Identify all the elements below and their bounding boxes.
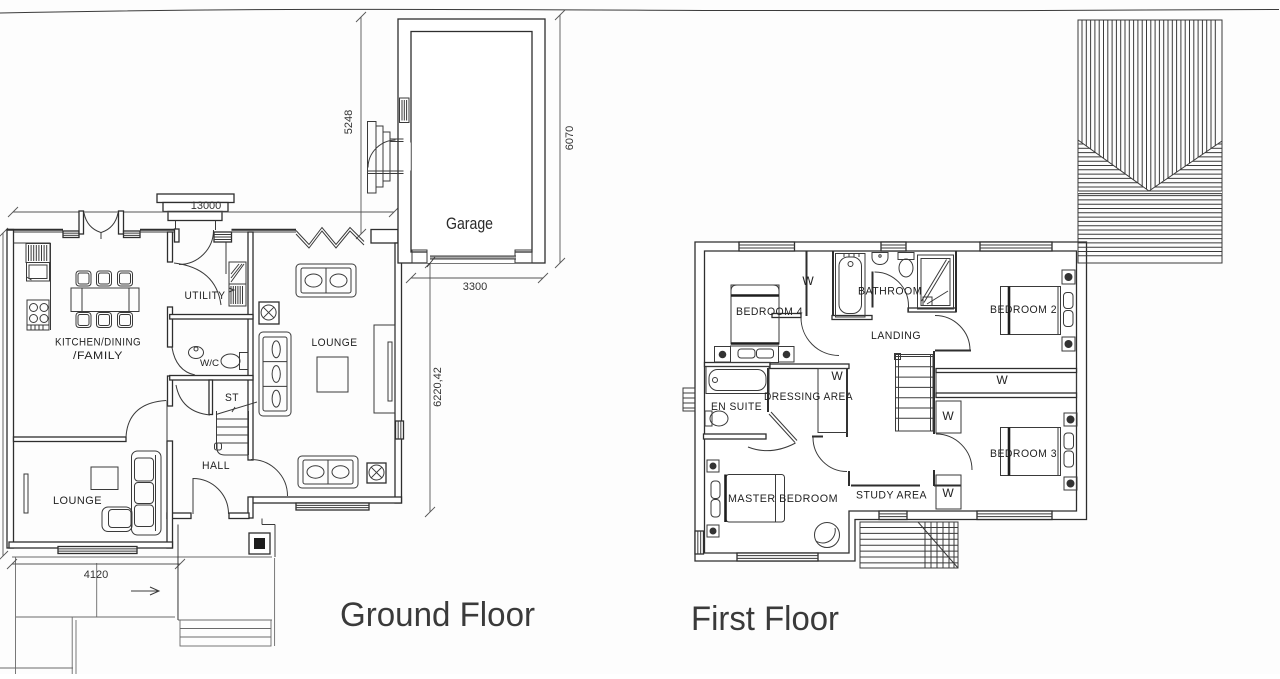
svg-text:Ground Floor: Ground Floor [340,596,535,634]
svg-text:W: W [996,373,1008,387]
svg-text:EN SUITE: EN SUITE [711,401,762,413]
svg-text:W: W [802,274,814,288]
svg-text:MASTER BEDROOM: MASTER BEDROOM [728,493,838,505]
svg-text:STUDY AREA: STUDY AREA [856,490,927,502]
svg-text:13000: 13000 [191,200,222,212]
svg-text:6110: 6110 [0,360,3,384]
svg-text:LOUNGE: LOUNGE [312,337,358,349]
svg-text:Garage: Garage [446,214,493,233]
svg-text:W: W [942,486,954,500]
svg-text:4120: 4120 [84,569,108,581]
svg-text:3300: 3300 [463,281,487,293]
svg-text:UTILITY: UTILITY [185,290,226,302]
svg-text:5248: 5248 [343,110,355,134]
svg-text:W/C: W/C [200,358,219,369]
svg-text:DRESSING AREA: DRESSING AREA [764,391,853,403]
svg-text:LOUNGE: LOUNGE [53,495,102,507]
svg-text:HALL: HALL [202,460,230,472]
svg-text:BATHROOM: BATHROOM [858,286,922,298]
svg-text:LANDING: LANDING [871,330,921,342]
svg-text:KITCHEN/DINING: KITCHEN/DINING [55,337,141,349]
svg-text:/FAMILY: /FAMILY [73,350,123,362]
svg-text:BEDROOM 2: BEDROOM 2 [990,304,1057,316]
svg-text:6220,42: 6220,42 [432,367,444,407]
svg-text:ST: ST [225,392,239,404]
svg-text:First Floor: First Floor [691,600,839,638]
svg-text:W: W [831,369,843,383]
svg-text:BEDROOM 3: BEDROOM 3 [990,448,1057,460]
svg-text:6070: 6070 [564,126,576,150]
svg-text:W: W [942,409,954,423]
svg-text:BEDROOM 4: BEDROOM 4 [736,306,803,318]
